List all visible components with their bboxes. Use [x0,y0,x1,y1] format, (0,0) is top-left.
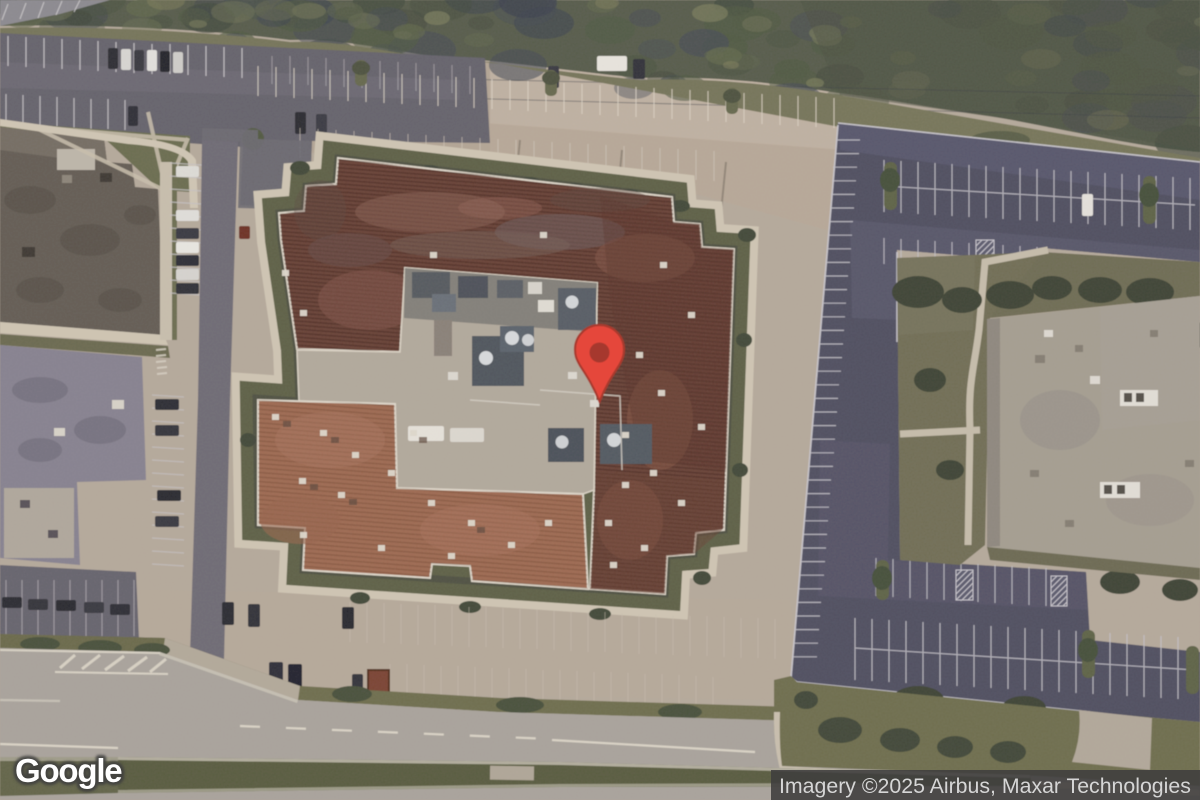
svg-text:Imagery ©2025 Airbus, Maxar Te: Imagery ©2025 Airbus, Maxar Technologies [779,774,1191,798]
svg-text:Google: Google [15,752,122,789]
